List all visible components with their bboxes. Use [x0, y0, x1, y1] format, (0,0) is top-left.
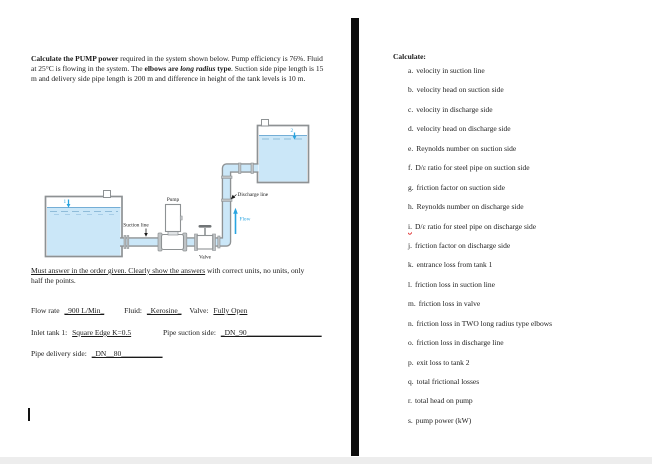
calc-item-q: q.total frictional losses — [408, 377, 638, 396]
calc-item-text: entrance loss from tank 1 — [417, 260, 493, 269]
pipe-delivery-line: Pipe delivery side: _DN__80___________ — [31, 349, 163, 358]
calc-item-prefix: d. — [408, 124, 414, 133]
calc-item-text: total head on pump — [415, 396, 473, 405]
calc-item-g: g.friction factor on suction side — [408, 183, 638, 202]
calc-item-text: D/ε ratio for steel pipe on discharge si… — [415, 222, 536, 231]
page-divider — [351, 18, 359, 456]
calc-item-s: s.pump power (kW) — [408, 416, 638, 435]
inlet-tank-value: Square Edge K=0.5 — [72, 328, 131, 337]
calc-item-text: D/ε ratio for steel pipe on suction side — [415, 163, 529, 172]
calc-item-i: i.D/ε ratio for steel pipe on discharge … — [408, 222, 638, 241]
tank-2 — [258, 120, 309, 183]
left-page: Calculate the PUMP power required in the… — [0, 0, 351, 464]
calc-item-prefix: a. — [408, 66, 413, 75]
calc-item-l: l.friction loss in suction line — [408, 280, 638, 299]
calc-item-prefix: j. — [408, 241, 412, 250]
tank2-number: 2 — [291, 128, 294, 134]
inlet-tank-line: Inlet tank 1: Square Edge K=0.5 Pipe suc… — [31, 328, 322, 337]
piping-diagram: 1 2 Pump Valve Suction line Dis — [40, 112, 322, 268]
calc-item-f: f.D/ε ratio for steel pipe on suction si… — [408, 163, 638, 182]
discharge-line-label: Discharge line — [238, 192, 269, 198]
suction-line-label: Suction line — [123, 223, 149, 229]
calc-item-prefix: b. — [408, 85, 414, 94]
problem-bold-3: type — [217, 64, 231, 73]
calc-item-a: a.velocity in suction line — [408, 66, 638, 85]
calc-item-text: Reynolds number on suction side — [416, 144, 516, 153]
calc-item-text: pump power (kW) — [416, 416, 471, 425]
calc-item-m: m.friction loss in valve — [408, 299, 638, 318]
flow-rate-line: Flow rate _900 L/Min_ Fluid: _Kerosine_ … — [31, 306, 247, 315]
calc-item-text: exit loss to tank 2 — [417, 358, 470, 367]
calc-item-j: j.friction factor on discharge side — [408, 241, 638, 260]
calc-item-k: k.entrance loss from tank 1 — [408, 260, 638, 279]
calc-item-text: velocity in discharge side — [416, 105, 492, 114]
pipe-delivery-label: Pipe delivery side: — [31, 349, 87, 358]
tank1-vent-icon — [104, 191, 111, 198]
calculate-items-list: a.velocity in suction line b.velocity he… — [408, 64, 638, 435]
problem-bold-italic: long radius — [180, 64, 217, 73]
calc-item-text: friction loss in valve — [419, 299, 480, 308]
flow-label: Flow — [240, 217, 251, 223]
valve-state-label: Valve: — [189, 306, 208, 315]
pipe-delivery-value: _DN__80___________ — [92, 349, 163, 358]
problem-bold-2: elbows are — [144, 64, 180, 73]
text-cursor — [28, 408, 30, 421]
calc-item-prefix: n. — [408, 319, 414, 328]
calc-item-prefix: c. — [408, 105, 413, 114]
suction-label-arrow-icon — [144, 229, 148, 237]
calc-item-p: p.exit loss to tank 2 — [408, 358, 638, 377]
calc-item-text: friction factor on discharge side — [415, 241, 510, 250]
calc-item-r: r.total head on pump — [408, 396, 638, 415]
valve-icon — [195, 225, 216, 251]
problem-statement: Calculate the PUMP power required in the… — [31, 54, 327, 84]
calculate-heading: Calculate: — [393, 52, 426, 61]
calc-item-prefix: l. — [408, 280, 412, 289]
answer-instructions: Must answer in the order given. Clearly … — [31, 266, 317, 286]
instructions-underlined: Must answer in the order given. Clearly … — [31, 266, 205, 275]
flow-rate-value: _900 L/Min_ — [64, 306, 104, 315]
calc-item-prefix: m. — [408, 299, 416, 308]
pump-icon — [158, 205, 187, 252]
calc-item-prefix: h. — [408, 202, 414, 211]
calc-item-text: velocity head on suction side — [417, 85, 504, 94]
tank2-vent-icon — [262, 120, 269, 127]
calc-item-text: total frictional losses — [417, 377, 480, 386]
right-page: Calculate: a.velocity in suction line b.… — [359, 0, 652, 464]
valve-state-value: Fully Open — [213, 306, 247, 315]
calc-item-prefix: e. — [408, 144, 413, 153]
calc-item-c: c.velocity in discharge side — [408, 105, 638, 124]
calc-item-prefix: k. — [408, 260, 414, 269]
fluid-value: _Kerosine_ — [147, 306, 182, 315]
calc-item-prefix: f. — [408, 163, 412, 172]
calc-item-prefix: q. — [408, 377, 414, 386]
fluid-label: Fluid: — [124, 306, 142, 315]
pipe-suction-value: _DN_90____________________ — [221, 328, 322, 337]
pipe-flanges — [124, 163, 253, 249]
calc-item-text: velocity in suction line — [416, 66, 485, 75]
calc-item-text: friction loss in discharge line — [417, 338, 504, 347]
calc-item-prefix: p. — [408, 358, 414, 367]
pump-label: Pump — [167, 197, 180, 203]
problem-bold-lead: Calculate the PUMP power — [31, 54, 118, 63]
inlet-tank-label: Inlet tank 1: — [31, 328, 67, 337]
tank1-number: 1 — [64, 199, 67, 205]
calc-item-h: h.Reynolds number on discharge side — [408, 202, 638, 221]
valve-label: Valve — [199, 255, 212, 261]
calc-item-n: n.friction loss in TWO long radius type … — [408, 319, 638, 338]
calc-item-text: friction loss in TWO long radius type el… — [417, 319, 552, 328]
pipe-suction-label: Pipe suction side: — [163, 328, 216, 337]
document-viewer: { "left_page": { "problem": { "bold_lead… — [0, 0, 652, 464]
calc-item-b: b.velocity head on suction side — [408, 85, 638, 104]
discharge-label-arrow-icon — [231, 195, 237, 200]
calc-item-text: Reynolds number on discharge side — [417, 202, 524, 211]
calc-item-d: d.velocity head on discharge side — [408, 124, 638, 143]
calc-item-prefix: s. — [408, 416, 413, 425]
calc-item-prefix: r. — [408, 396, 412, 405]
calc-item-prefix-misspelled: i. — [408, 222, 412, 231]
calc-item-prefix: o. — [408, 338, 414, 347]
tank-1 — [46, 191, 123, 257]
calc-item-o: o.friction loss in discharge line — [408, 338, 638, 357]
calc-item-prefix: g. — [408, 183, 414, 192]
calc-item-text: velocity head on discharge side — [417, 124, 511, 133]
calc-item-text: friction loss in suction line — [415, 280, 495, 289]
calc-item-e: e.Reynolds number on suction side — [408, 144, 638, 163]
flow-arrow-icon — [233, 208, 238, 234]
calc-item-text: friction factor on suction side — [417, 183, 505, 192]
flow-rate-label: Flow rate — [31, 306, 60, 315]
